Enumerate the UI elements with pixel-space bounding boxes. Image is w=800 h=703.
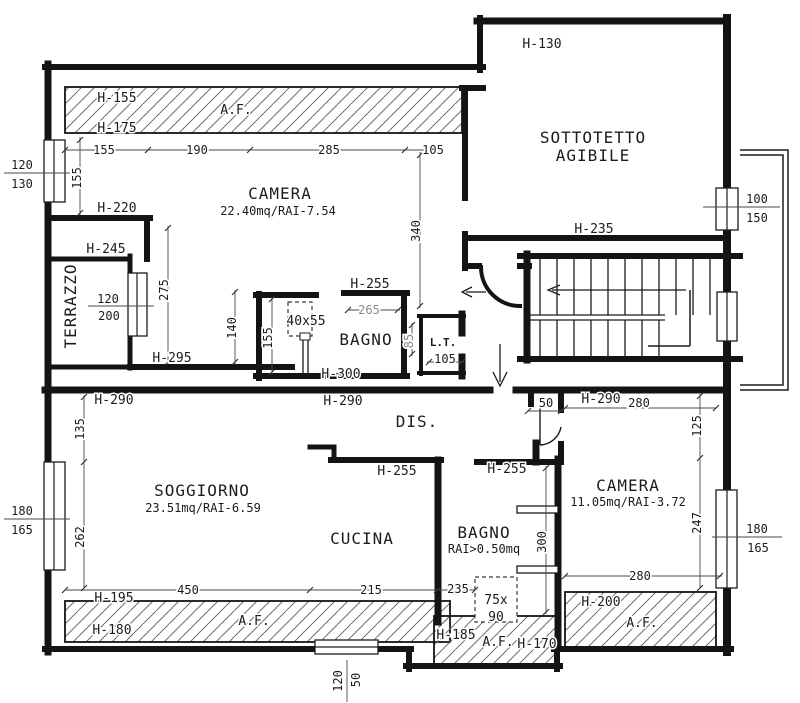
wall-dis-step (310, 447, 334, 458)
dim-280-top: 280 (628, 396, 650, 410)
dim-125: 125 (690, 415, 704, 437)
wall-stairwell (520, 256, 740, 359)
height-label-h290-mid: H-290 (323, 394, 362, 409)
room-detail-soggiorno: 23.51mq/RAI-6.59 (145, 501, 261, 515)
floor-plan-canvas: H-155 A.F. H-175 155 190 285 105 155 H-1… (0, 0, 800, 703)
dim-155-top: 155 (93, 143, 115, 157)
height-label-h180: H-180 (92, 623, 131, 638)
height-label-h195: H-195 (94, 591, 133, 606)
window-label-165l: 165 (11, 523, 33, 537)
dim-280-bottom: 280 (629, 569, 651, 583)
window-label-120a: 120 (11, 158, 33, 172)
room-label-bagno1: BAGNO (339, 330, 392, 349)
window-120-130 (44, 140, 65, 202)
stair-up-arrow (548, 285, 686, 295)
windows (44, 140, 788, 654)
dim-285: 285 (318, 143, 340, 157)
window-label-180l: 180 (11, 504, 33, 518)
dim-340: 340 (409, 220, 423, 242)
height-label-h300: H-300 (321, 367, 360, 382)
fixture-label-shower: 40x55 (286, 314, 325, 329)
stair-rail (648, 290, 690, 346)
room-label-sottotetto-1: SOTTOTETTO (540, 128, 646, 147)
staircase (462, 259, 710, 386)
af-label-bottom-right: A.F. (626, 616, 657, 631)
window-180-165-left (44, 462, 65, 570)
room-label-terrazzo: TERRAZZO (61, 263, 80, 348)
bagno2-shelf-lower (517, 566, 558, 573)
room-label-bagno2: BAGNO (457, 523, 510, 542)
dim-262: 262 (73, 526, 87, 548)
height-label-h185: H-185 (436, 628, 475, 643)
af-label-bagno: A.F. (482, 635, 513, 650)
room-label-lt: L.T. (430, 336, 457, 349)
room-detail-bagno2: RAI>0.50mq (448, 542, 520, 556)
entry-down-arrow (493, 344, 507, 386)
height-label-h255-bagno2: H-255 (487, 462, 526, 477)
room-label-sottotetto-2: AGIBILE (556, 146, 630, 165)
dim-215: 215 (360, 583, 382, 597)
entry-door-arc (481, 267, 520, 306)
height-label-h235: H-235 (574, 222, 613, 237)
dim-135: 135 (73, 418, 87, 440)
window-stairwell (717, 292, 737, 341)
af-label-top: A.F. (220, 103, 251, 118)
wall-outer-bottom (45, 646, 731, 669)
floor-plan-page: H-155 A.F. H-175 155 190 285 105 155 H-1… (0, 0, 800, 703)
dim-265: 265 (358, 303, 380, 317)
fixture-label-skylight-a: 75x (484, 593, 508, 608)
fixture-label-skylight-b: 90 (488, 610, 504, 625)
dim-105-top: 105 (422, 143, 444, 157)
window-100-150-right (716, 188, 738, 230)
wall-sottotetto-left (462, 88, 483, 241)
window-120-50-bottom (315, 640, 378, 654)
room-label-camera2: CAMERA (596, 476, 660, 495)
dim-50: 50 (539, 396, 553, 410)
height-label-h245: H-245 (86, 242, 125, 257)
bagno1-plumbing (303, 336, 308, 374)
balcony-outline (740, 150, 788, 390)
room-detail-camera1: 22.40mq/RAI-7.54 (220, 204, 336, 218)
window-label-180r: 180 (746, 522, 768, 536)
window-label-150: 150 (746, 211, 768, 225)
dim-275: 275 (157, 279, 171, 301)
window-label-120b: 120 (97, 292, 119, 306)
height-label-h200: H-200 (581, 595, 620, 610)
window-120-200-terrazzo (128, 273, 147, 336)
dim-300: 300 (535, 531, 549, 553)
bagno2-shelf-upper (517, 506, 558, 513)
af-label-bottom-left: A.F. (238, 614, 269, 629)
dim-155-bagno: 155 (261, 327, 275, 349)
window-label-100: 100 (746, 192, 768, 206)
height-label-h290-right: H-290 (581, 392, 620, 407)
height-label-h170: H-170 (517, 637, 556, 652)
wall-outer-top (45, 18, 483, 70)
room-label-soggiorno: SOGGIORNO (154, 481, 250, 500)
bagno1-plumbing-box (300, 333, 310, 340)
dim-235: 235 (447, 582, 469, 596)
window-label-165r: 165 (747, 541, 769, 555)
dim-155-left-vert: 155 (70, 167, 84, 189)
height-label-h290-left: H-290 (94, 393, 133, 408)
dim-190: 190 (186, 143, 208, 157)
dim-247: 247 (690, 512, 704, 534)
window-label-200: 200 (98, 309, 120, 323)
camera2-door-leaf (540, 407, 561, 445)
window-180-165-right (716, 490, 737, 588)
height-label-h130: H-130 (522, 37, 561, 52)
room-detail-camera2: 11.05mq/RAI-3.72 (570, 495, 686, 509)
height-label-h255-cucina: H-255 (377, 464, 416, 479)
stair-treads (530, 259, 710, 358)
window-label-130: 130 (11, 177, 33, 191)
landing-arrow (462, 287, 486, 297)
height-label-h255-bagno1: H-255 (350, 277, 389, 292)
height-label-h295: H-295 (152, 351, 191, 366)
dim-450: 450 (177, 583, 199, 597)
height-label-h175: H-175 (97, 121, 136, 136)
room-label-dis: DIS. (396, 412, 439, 431)
dim-85: 85 (402, 334, 416, 348)
room-label-camera1: CAMERA (248, 184, 312, 203)
window-label-50: 50 (349, 673, 363, 687)
height-label-h220: H-220 (97, 201, 136, 216)
window-label-120c: 120 (331, 670, 345, 692)
dim-140: 140 (225, 317, 239, 339)
room-label-cucina: CUCINA (330, 529, 394, 548)
height-label-h155: H-155 (97, 91, 136, 106)
dim-105-lt: 105 (434, 352, 456, 366)
